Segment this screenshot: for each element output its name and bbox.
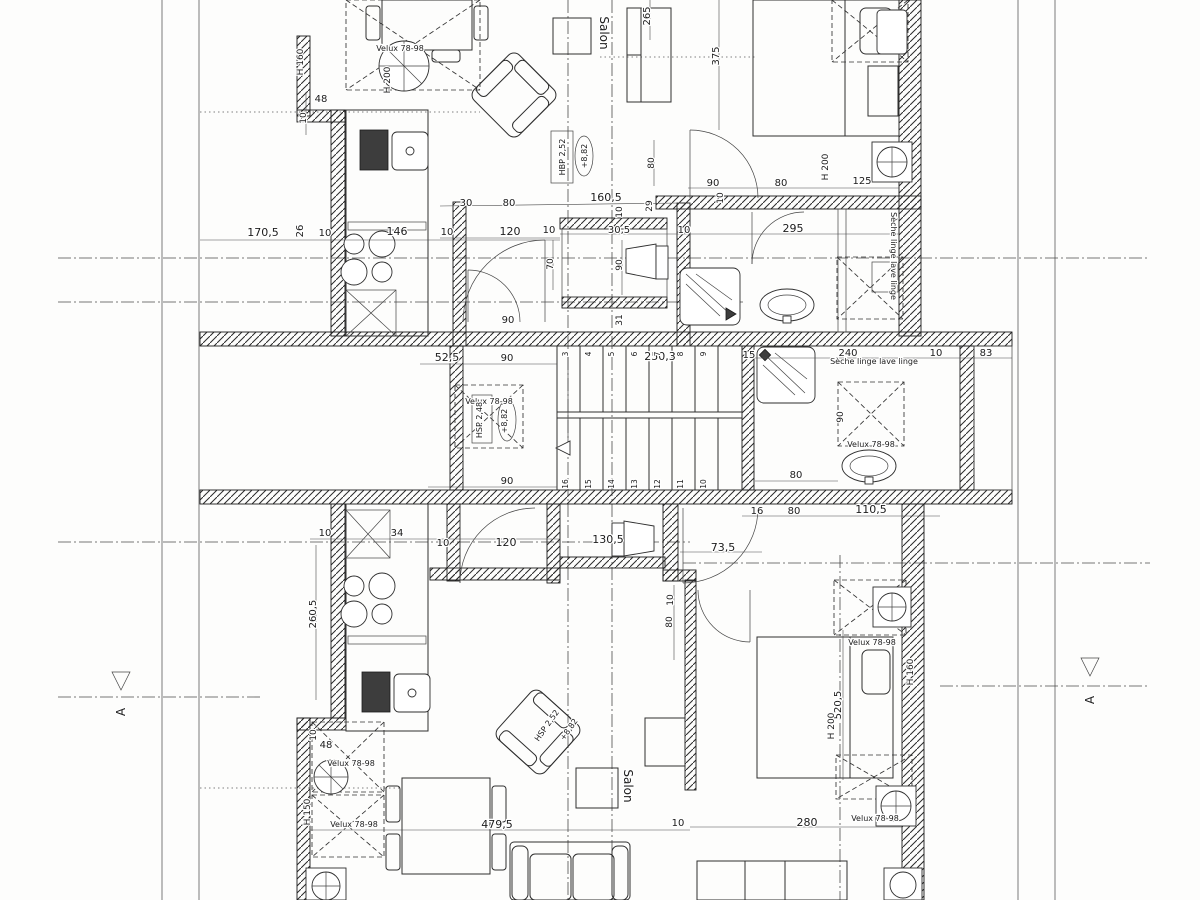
section-letter: A: [1083, 695, 1097, 704]
armchair: [469, 50, 560, 141]
velux-skylights: [312, 0, 916, 857]
height-label: H 200: [827, 712, 837, 739]
hob-burner: [341, 259, 367, 285]
stair-number: 12: [653, 479, 662, 489]
stair-number: 13: [630, 479, 639, 489]
basin-tap: [865, 477, 873, 484]
velux-label: Velux 78-98: [330, 820, 378, 829]
wall-segment: [450, 346, 463, 490]
height-label: H 150: [303, 798, 313, 825]
wall-segment: [902, 504, 924, 900]
toilet-bowl: [626, 244, 656, 279]
toilet-bowl: [624, 521, 654, 556]
wall-segment: [562, 297, 667, 308]
stair-number: 11: [676, 479, 685, 489]
stair-direction-arrow: [556, 441, 570, 455]
kitchen-sink-drainer: [362, 672, 390, 712]
dim-label: 80: [665, 616, 675, 628]
armchair-cushion: [513, 58, 551, 96]
armchair-body: [469, 50, 560, 141]
drawer-front: [348, 636, 426, 644]
velux-label: Velux 78-98: [376, 44, 424, 53]
dim-label: 80: [790, 470, 803, 481]
chair: [492, 786, 506, 822]
dim-label: 16: [751, 506, 764, 517]
dim-label: 48: [320, 740, 333, 751]
stair-number: 14: [607, 479, 616, 489]
dimension-lines: [200, 0, 1012, 830]
dim-label: 10: [309, 729, 319, 741]
armchair-arm: [510, 94, 550, 134]
dim-label: 479,5: [481, 818, 513, 831]
stair-numbers: 3 4 5 6 7 8 9 16 15 14 13 12 11 10: [561, 351, 708, 488]
wall-segment: [742, 346, 754, 490]
dim-label: 80: [503, 198, 516, 209]
dim-label: 110,5: [855, 503, 887, 516]
dim-label: 160,5: [590, 191, 622, 204]
dim-label: 280: [797, 816, 818, 829]
velux-label: Velux 78-98: [847, 440, 895, 449]
section-letter: A: [114, 707, 128, 716]
side-table: [553, 18, 591, 54]
level-label: +8,82: [580, 144, 589, 169]
dim-label: 295: [783, 222, 804, 235]
dim-line: [440, 203, 680, 206]
dim-label: 170,5: [247, 226, 279, 239]
stair-number: 3: [561, 351, 570, 356]
dim-label: 90: [501, 353, 514, 364]
section-markers: A A: [58, 658, 1150, 716]
room-label-salon-bottom: Salon: [621, 769, 635, 802]
dim-label: 29: [645, 200, 655, 212]
height-label: H 200: [821, 153, 831, 180]
sofa-cushion: [530, 854, 571, 900]
wall-segment: [656, 196, 921, 209]
dim-label: 73,5: [711, 541, 736, 554]
dim-label: 48: [315, 94, 328, 105]
dim-label: 52,5: [435, 351, 460, 364]
dim-label: 80: [788, 506, 801, 517]
dim-label: 146: [387, 225, 408, 238]
dim-label: 83: [980, 348, 993, 359]
velux-cross: [455, 385, 523, 448]
ceiling-height-label: HSP 2,48: [475, 402, 484, 438]
dim-label: 34: [391, 528, 404, 539]
stair-number: 15: [584, 479, 593, 489]
stair-number: 8: [676, 351, 685, 356]
dim-label: 10: [672, 818, 685, 829]
dim-label: 10: [678, 225, 691, 236]
room-label-salon-top: Salon: [597, 16, 611, 49]
dim-label: 90: [615, 259, 625, 271]
velux-label: Velux 78-98: [327, 759, 375, 768]
nightstand: [868, 66, 898, 116]
dim-label: 10: [299, 112, 309, 124]
dim-label: 10: [543, 225, 556, 236]
wall-segment: [453, 202, 466, 346]
height-label: H 160: [906, 658, 916, 685]
height-label: H 160: [296, 48, 306, 75]
velux-skylight: [832, 0, 908, 62]
toilet-tank: [656, 246, 668, 279]
armchair-arm: [474, 58, 514, 98]
cabinet-cross: [346, 510, 390, 558]
furniture-bottom: [386, 637, 893, 900]
floor-plan-drawing: 170,5 26 10 146 10 120 10 70 48 10 H 160…: [0, 0, 1200, 900]
dim-label: 10: [441, 227, 454, 238]
stair-number: 7: [653, 351, 662, 356]
hob-burner: [341, 601, 367, 627]
chair: [366, 6, 380, 40]
velux-skylight: [838, 382, 904, 446]
dim-label: 260,5: [308, 600, 319, 629]
velux-skylight: [312, 722, 384, 794]
dim-label: 10: [319, 528, 332, 539]
level-label: +8,82: [500, 409, 509, 434]
door-arc: [752, 212, 804, 264]
sink-drain: [408, 689, 416, 697]
furniture-top: [366, 0, 899, 140]
pillow: [862, 650, 890, 694]
hob-burner: [344, 234, 364, 254]
dim-label: 70: [546, 258, 556, 270]
dim-label: 375: [711, 46, 722, 65]
wall-segment: [685, 580, 696, 790]
dim-label: 130,5: [592, 533, 624, 546]
dim-label: 80: [775, 178, 788, 189]
dim-label: 10: [615, 206, 625, 218]
cabinet-cross: [346, 290, 396, 336]
wall-segment: [430, 568, 560, 580]
dim-label: 31: [615, 314, 625, 325]
wall-segment: [560, 557, 665, 568]
axis-lines: [58, 0, 1150, 900]
door-arc: [463, 240, 545, 322]
sofa-arm: [512, 846, 528, 900]
section-arrow-icon: [112, 672, 130, 690]
partition: [838, 209, 846, 332]
dim-label: 15: [743, 350, 756, 361]
velux-label: Velux 78-98: [851, 814, 899, 823]
kitchen-sink-drainer: [360, 130, 388, 170]
dim-label: 80: [647, 157, 657, 169]
laundry-label: Sèche linge lave linge: [830, 356, 918, 366]
basin-tap: [783, 316, 791, 323]
sink-drain: [406, 147, 414, 155]
velux-label: Velux 78-98: [848, 638, 896, 647]
stair-number: 5: [607, 351, 616, 356]
nightstand: [645, 718, 685, 766]
hob-burner: [344, 576, 364, 596]
floor-plan-page: 170,5 26 10 146 10 120 10 70 48 10 H 160…: [0, 0, 1200, 900]
velux-cross: [838, 382, 904, 446]
armchair-arm: [497, 729, 538, 768]
wall-segment: [331, 110, 345, 336]
chair: [474, 6, 488, 40]
level-label: +8,82: [558, 717, 579, 742]
staircase: [556, 346, 742, 490]
section-arrow-icon: [1081, 658, 1099, 676]
wc-bowl: [890, 872, 916, 898]
velux-box: [838, 382, 904, 446]
laundry-label: Sèche linge lave linge: [889, 212, 899, 300]
dim-label: 10: [716, 192, 726, 204]
dim-label: 265: [642, 6, 653, 25]
kitchen-fixtures: [341, 130, 430, 712]
eave-space: [974, 346, 1012, 490]
sofa-cushion: [573, 854, 614, 900]
hob-burner: [369, 573, 395, 599]
dim-label: 120: [500, 225, 521, 238]
dining-table: [402, 778, 490, 874]
dim-label: 30: [460, 198, 473, 209]
dim-label: 10: [437, 538, 450, 549]
wc-unit: [877, 10, 907, 54]
dim-label: 10: [666, 594, 676, 606]
bed: [697, 861, 847, 900]
velux-label: Velux 78-98: [465, 397, 513, 406]
stair-number: 4: [584, 351, 593, 356]
wall-segment: [200, 332, 1012, 346]
dim-label: 125: [852, 176, 871, 187]
dim-label: 90: [707, 178, 720, 189]
velux-box: [455, 385, 523, 448]
height-label: H 200: [383, 66, 393, 93]
dim-label: 10: [319, 228, 332, 239]
bed: [757, 637, 893, 778]
dim-label: 10: [930, 348, 943, 359]
stair-number: 10: [699, 479, 708, 489]
stair-number: 9: [699, 351, 708, 356]
stair-number: 6: [630, 351, 639, 356]
hob-burner: [372, 262, 392, 282]
ceiling-height-label: HBP 2,52: [558, 139, 567, 176]
chair: [386, 786, 400, 822]
stair-number: 16: [561, 479, 570, 489]
velux-skylight: [455, 385, 523, 448]
dim-label: 90: [501, 476, 514, 487]
hob-burner: [372, 604, 392, 624]
dim-label: 90: [836, 411, 846, 423]
dim-label: 90: [502, 315, 515, 326]
dim-label: 120: [496, 536, 517, 549]
door-arc: [698, 590, 750, 642]
chair: [386, 834, 400, 870]
wall-segment: [200, 490, 1012, 504]
wall-segment: [663, 504, 678, 581]
velux-skylight: [834, 580, 911, 635]
dim-label: 30,5: [608, 225, 630, 236]
dim-label: 26: [295, 225, 306, 238]
chair: [492, 834, 506, 870]
wall-segment: [663, 570, 696, 581]
wall-segment: [960, 346, 974, 490]
